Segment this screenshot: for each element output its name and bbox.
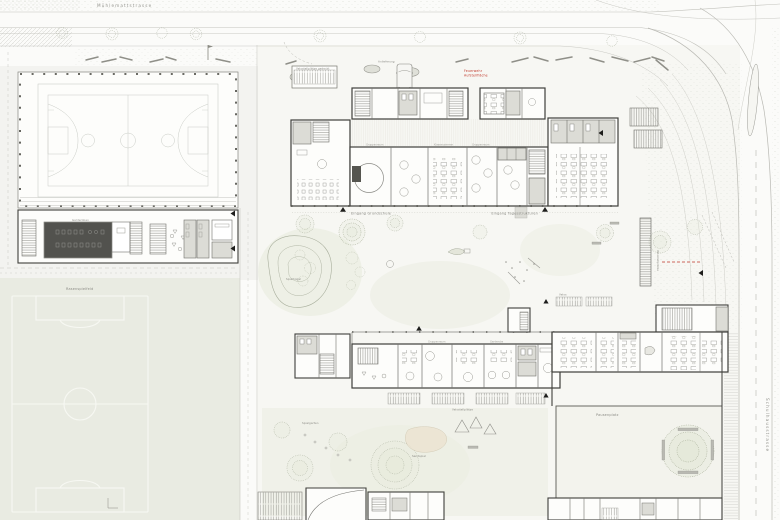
garden-bench [468,446,478,448]
entrance-school-label: Eingang Grundschule [351,212,391,216]
site-plan: Mühlemattstrasse Schulhausstrasse Eingan… [0,0,780,520]
garderobe-label: Garderoben [72,218,89,222]
fire-label-2: Aufstellfläche [464,74,488,78]
room-label-2: Klassenzimmer [434,143,454,147]
sand-label: Sandspiel [412,454,426,458]
courtyard-label: Pausenplatz [596,413,619,417]
main-right-wing [551,120,615,198]
delivery-label: Anlieferung [378,60,395,64]
sand-pit [405,427,446,453]
fire-label-1: Feuerwehr [464,69,483,73]
pergola-ticks [258,492,302,520]
street-top-label: Mühlemattstrasse [97,3,152,8]
kiga-room-label-2: Garderobe [490,340,504,344]
bike-main-label: Velostellplätze gedeckt [296,67,329,71]
bike-kiga-label: Velostellplätze [452,408,473,412]
bike-rack-path [640,218,651,286]
right-ramp [662,308,692,330]
kiga-pavilion [508,308,530,332]
hall-annex [18,210,238,263]
room-label-3: Gruppenraum [472,143,490,147]
bike-path-label: Velostellplätze [656,250,660,271]
bike-right-label: Velos [559,293,567,297]
plan-drawing: Mühlemattstrasse Schulhausstrasse Eingan… [0,0,780,520]
kiga-room-label-1: Gruppenraum [428,340,446,344]
courtyard-tree-big [662,425,714,477]
sports-hall [18,72,238,208]
right-bottom-strip [548,498,722,520]
garden-label: Spielgarten [302,421,319,425]
entrance-daycare-label: Eingang Tagesstrukturen [491,212,538,216]
street-right-label: Schulhausstrasse [765,398,770,452]
room-label-1: Gruppenraum [366,143,384,147]
bottom-buildings [258,488,444,520]
mound-label: Spielhügel [286,277,301,281]
annex-stair [22,220,36,256]
field-label: Rasenspielfeld [66,287,93,291]
